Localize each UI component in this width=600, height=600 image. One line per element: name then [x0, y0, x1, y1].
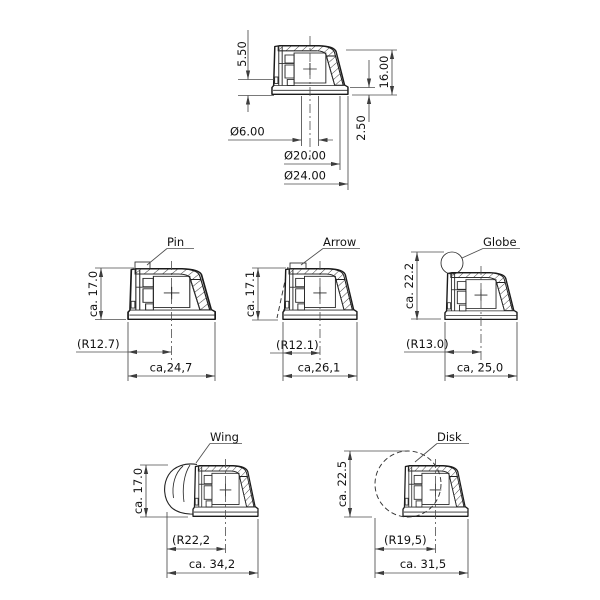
knob-technical-drawing: 5.50 16.00 2.50 Ø6.00 Ø20.00 [0, 0, 600, 600]
dim-height-pin: ca. 17.0 [86, 268, 134, 320]
variant-figure-wing: Wing ca. 17.0 (R22,2 ca. 34,2 [131, 430, 258, 578]
section-view-figure: 5.50 16.00 2.50 Ø6.00 Ø20.00 [228, 30, 397, 190]
dim-height-disk: ca. 22.5 [335, 451, 406, 517]
dim-inner-dia: Ø20.00 [284, 96, 340, 170]
leader-line [147, 249, 194, 266]
dim-radius-globe-value: (R13.0) [406, 337, 449, 351]
dim-radius-arrow: (R12.1) [270, 338, 320, 355]
variant-figure-disk: Disk ca. 22.5 (R19,5) ca. 31,5 [335, 430, 469, 578]
dim-height-arrow-value: ca. 17.1 [243, 271, 257, 317]
dim-height-disk-value: ca. 22.5 [335, 461, 349, 507]
dim-width-arrow-value: ca,26,1 [298, 361, 341, 375]
dim-height-globe: ca. 22.2 [402, 252, 444, 320]
dim-width-wing-value: ca. 34,2 [189, 557, 235, 571]
knob-drawing-wing [193, 466, 258, 517]
dim-radius-arrow-value: (R12.1) [276, 338, 319, 352]
variant-figure-pin: Pin ca. 17.0 (R12.7) ca,24,7 [76, 235, 215, 381]
dim-total-height: 16.00 [346, 50, 397, 95]
dim-shaft-dia-value: Ø6.00 [230, 125, 265, 139]
wing-pointer [165, 464, 197, 514]
technical-drawing-page: 5.50 16.00 2.50 Ø6.00 Ø20.00 [0, 0, 600, 600]
dim-outer-dia-value: Ø24.00 [284, 169, 326, 183]
dim-shaft-dia: Ø6.00 [228, 96, 333, 146]
variant-label-arrow: Arrow [323, 235, 356, 249]
pin-pointer [135, 262, 150, 269]
knob-drawing-pin [128, 269, 215, 320]
dim-radius-disk: (R19,5) [375, 533, 436, 551]
arrow-pointer [290, 263, 306, 269]
dim-total-height-value: 16.00 [377, 56, 391, 89]
dim-radius-globe: (R13.0) [404, 337, 481, 354]
dim-width-pin-value: ca,24,7 [150, 361, 193, 375]
dim-skirt-height-value: 2.50 [354, 115, 368, 141]
dim-height-wing-value: ca. 17.0 [131, 468, 145, 514]
variant-figure-globe: Globe ca. 22.2 (R13.0) ca, 25,0 [402, 235, 520, 381]
knob-drawing-disk [403, 466, 468, 517]
variant-label-disk: Disk [437, 430, 462, 444]
dim-boss-height-value: 5.50 [235, 41, 249, 67]
dim-radius-disk-value: (R19,5) [384, 533, 427, 547]
leader-line [196, 444, 242, 464]
dim-outer-dia: Ø24.00 [284, 96, 348, 190]
dim-width-globe-value: ca, 25,0 [457, 361, 503, 375]
dim-radius-pin: (R12.7) [76, 337, 172, 354]
variant-label-globe: Globe [483, 235, 517, 249]
dim-width-disk: ca. 31,5 [375, 518, 468, 578]
dim-skirt-height: 2.50 [350, 60, 375, 141]
variant-figure-arrow: Arrow ca. 17.1 (R12.1) ca,26,1 [243, 235, 360, 381]
dim-boss-height: 5.50 [235, 30, 274, 112]
leader-line [462, 249, 520, 259]
dim-radius-wing: (R22,2 [167, 533, 226, 551]
dim-height-pin-value: ca. 17.0 [86, 271, 100, 317]
knob-drawing-arrow [283, 269, 357, 320]
dim-inner-dia-value: Ø20.00 [284, 149, 326, 163]
leader-line [301, 249, 360, 266]
variant-label-pin: Pin [167, 235, 184, 249]
dim-height-globe-value: ca. 22.2 [402, 263, 416, 309]
dim-radius-wing-value: (R22,2 [172, 533, 210, 547]
dim-width-disk-value: ca. 31,5 [400, 557, 446, 571]
leader-line [415, 444, 469, 463]
globe-pointer [441, 252, 463, 274]
dim-height-arrow: ca. 17.1 [243, 268, 286, 320]
variant-label-wing: Wing [210, 430, 239, 444]
dim-radius-pin-value: (R12.7) [77, 337, 120, 351]
